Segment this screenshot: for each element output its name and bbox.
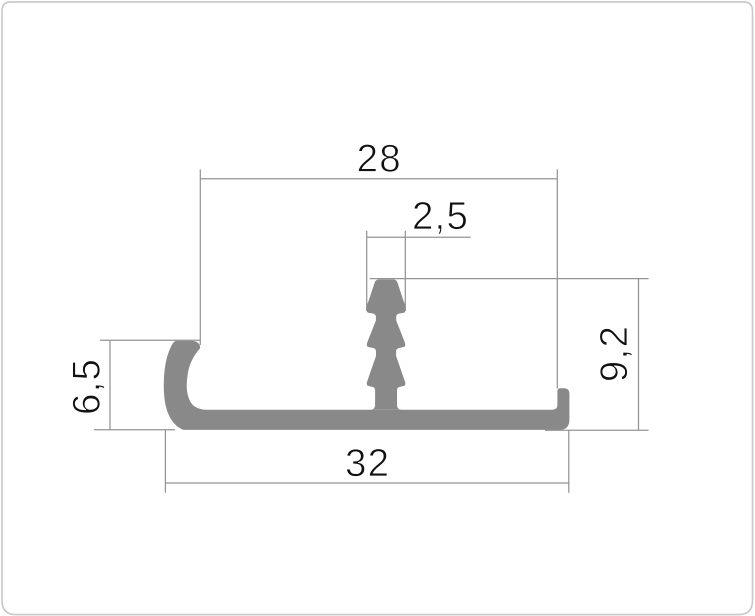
svg-text:28: 28 [357, 138, 402, 181]
svg-text:9,2: 9,2 [593, 325, 636, 382]
svg-text:6,5: 6,5 [65, 358, 108, 415]
svg-text:2,5: 2,5 [412, 195, 469, 238]
svg-text:32: 32 [345, 442, 390, 485]
